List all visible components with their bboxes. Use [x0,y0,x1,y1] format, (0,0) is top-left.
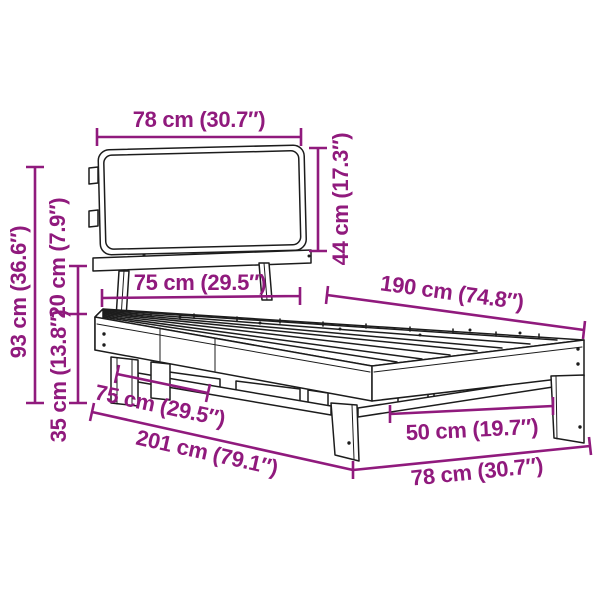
dim-headboard-width-label: 78 cm (30.7″) [133,107,266,132]
dim-slat-length-label: 190 cm (74.8″) [379,270,526,314]
dim-total-height: 93 cm (36.6″) [6,167,44,403]
dim-slat-width-label: 75 cm (29.5″) [134,270,267,295]
headboard-outer-panel [98,145,307,255]
headboard-left-bracket-bottom [89,210,98,227]
dim-frame-gap-label: 20 cm (7.9″) [45,198,70,319]
headboard-left-bracket-top [89,167,98,184]
dim-leg-spacing-label: 50 cm (19.7″) [405,414,539,445]
dim-gap-and-base-height: 20 cm (7.9″) 35 cm (13.8″) [45,198,87,443]
bed-dimension-diagram-svg: 78 cm (30.7″) 44 cm (17.3″) 93 cm (36.6″… [0,0,600,600]
dim-headboard-height-label: 44 cm (17.3″) [328,133,353,266]
dim-foot-width: 78 cm (30.7″) [353,437,591,491]
dim-headboard-width: 78 cm (30.7″) [97,107,301,146]
dim-foot-width-label: 78 cm (30.7″) [410,452,544,490]
dim-headboard-height: 44 cm (17.3″) [309,133,353,266]
dimension-diagram: 78 cm (30.7″) 44 cm (17.3″) 93 cm (36.6″… [0,0,600,600]
foot-front-leg [331,403,359,461]
headboard [98,145,307,255]
dim-total-height-label: 93 cm (36.6″) [6,226,31,359]
dim-base-height-label: 35 cm (13.8″) [46,310,71,443]
dim-total-length-label: 201 cm (79.1″) [134,425,281,481]
